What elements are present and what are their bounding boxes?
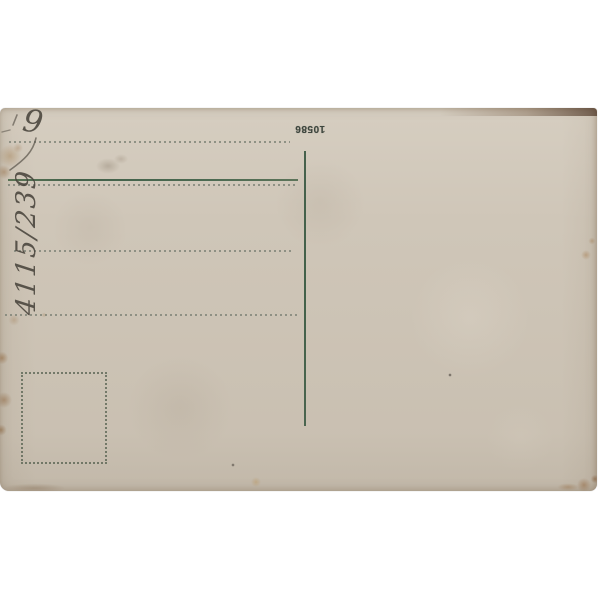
divider-underline (8, 184, 298, 186)
vertical-divider (304, 151, 306, 426)
address-line-3 (5, 314, 297, 316)
serial-number: 10586 (293, 123, 327, 134)
address-line-1 (9, 141, 290, 143)
top-edge-shadow (440, 108, 597, 116)
address-line-2 (14, 250, 294, 252)
corner-handwriting: 9 (20, 103, 46, 142)
side-handwriting: 4115/239 (11, 168, 42, 317)
postcard-back: 10586 4115/239 9 (0, 108, 597, 491)
stamp-box (21, 372, 107, 464)
divider-line (8, 179, 298, 181)
